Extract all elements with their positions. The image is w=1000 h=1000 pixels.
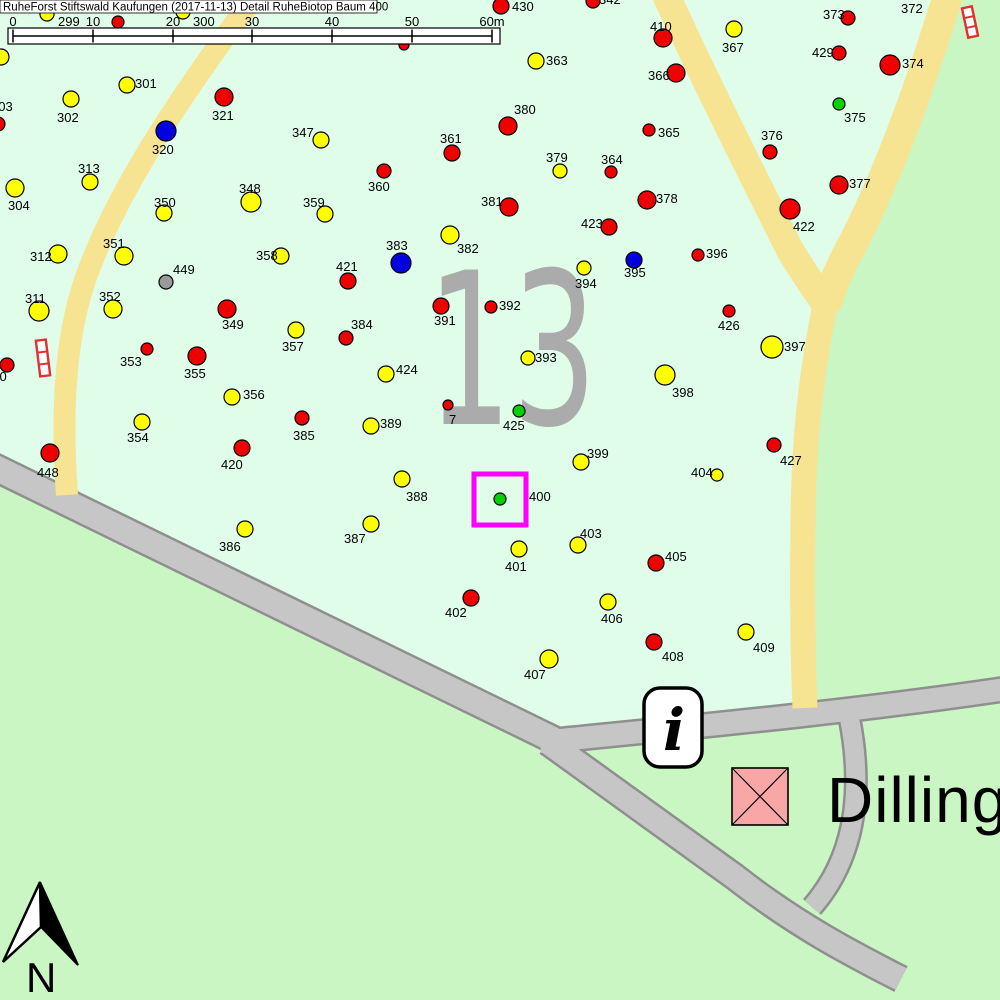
tree-label-388: 388 — [406, 489, 428, 504]
tree-label-311: 311 — [25, 291, 46, 306]
tree-marker-430[interactable]: 430 — [493, 0, 534, 14]
tree-label-359: 359 — [303, 195, 325, 210]
tree-label-373: 373 — [823, 7, 845, 22]
tree-label-342: 342 — [599, 0, 621, 7]
tree-marker-301[interactable]: 301 — [119, 76, 157, 93]
tree-label-427: 427 — [780, 453, 802, 468]
tree-label-312: 312 — [30, 249, 52, 264]
tree-label-380: 380 — [514, 102, 536, 117]
tree-label-400: 400 — [529, 489, 551, 504]
tree-label-364: 364 — [601, 152, 623, 167]
tree-label-381: 381 — [481, 194, 503, 209]
tree-label-398: 398 — [672, 385, 694, 400]
tree-marker-342[interactable]: 342 — [586, 0, 621, 8]
scale-tick-0: 0 — [9, 14, 16, 29]
info-icon[interactable]: i — [644, 688, 702, 767]
tree-label-301: 301 — [135, 76, 157, 91]
tree-label-349: 349 — [222, 317, 244, 332]
tree-marker-358[interactable]: 358 — [256, 248, 289, 264]
tree-label-423: 423 — [581, 216, 603, 231]
forest-map[interactable]: 13 2993003034303424103673733724293743633… — [0, 0, 1000, 1000]
tree-label-420: 420 — [221, 457, 243, 472]
tree-marker-unlabeled[interactable] — [112, 16, 124, 28]
title-bar: RuheForst Stiftswald Kaufungen (2017-11-… — [0, 0, 388, 14]
tree-label-403: 403 — [580, 526, 602, 541]
tree-label-399: 399 — [587, 446, 609, 461]
tree-label-363: 363 — [546, 53, 568, 68]
tree-label-304: 304 — [8, 198, 30, 213]
tree-label-7: 7 — [449, 412, 456, 427]
tree-label-421: 421 — [336, 259, 358, 274]
compartment-number: 13 — [427, 227, 597, 474]
scale-tick-10: 10 — [86, 14, 100, 29]
tree-label-410: 410 — [650, 19, 672, 34]
tree-label-372: 372 — [901, 1, 923, 16]
tree-label-358: 358 — [256, 248, 278, 263]
tree-label-347: 347 — [292, 125, 314, 140]
tree-label-425: 425 — [503, 418, 525, 433]
tree-label-367: 367 — [722, 40, 744, 55]
tree-marker-429[interactable]: 429 — [812, 45, 846, 60]
tree-label-348: 348 — [239, 181, 261, 196]
tree-label-299: 299 — [58, 14, 80, 29]
tree-label-320: 320 — [152, 142, 174, 157]
tree-label-397: 397 — [784, 339, 806, 354]
tree-label-386: 386 — [219, 539, 241, 554]
tree-label-404: 404 — [691, 465, 713, 480]
scale-tick-50: 50 — [405, 14, 419, 29]
tree-label-352: 352 — [99, 289, 121, 304]
north-label: N — [26, 954, 56, 1000]
scale-tick-40: 40 — [325, 14, 339, 29]
tree-label-385: 385 — [293, 428, 315, 443]
scale-tick-60m: 60m — [479, 14, 504, 29]
tree-label-376: 376 — [761, 128, 783, 143]
tree-label-310: 310 — [0, 369, 7, 384]
tree-label-377: 377 — [849, 176, 871, 191]
tree-label-430: 430 — [512, 0, 534, 14]
tree-label-382: 382 — [457, 241, 479, 256]
tree-label-396: 396 — [706, 246, 728, 261]
map-viewport: 13 2993003034303424103673733724293743633… — [0, 0, 1000, 1000]
tree-marker-363[interactable]: 363 — [528, 53, 568, 69]
tree-label-353: 353 — [120, 354, 142, 369]
tree-label-374: 374 — [902, 56, 924, 71]
tree-label-357: 357 — [282, 339, 304, 354]
scale-tick-30: 30 — [245, 14, 259, 29]
tree-label-360: 360 — [368, 179, 390, 194]
tree-label-392: 392 — [499, 298, 521, 313]
tree-label-365: 365 — [658, 125, 680, 140]
tree-label-393: 393 — [535, 350, 557, 365]
tree-label-407: 407 — [524, 667, 546, 682]
tree-marker-348[interactable]: 348 — [239, 181, 261, 212]
tree-label-424: 424 — [396, 362, 418, 377]
tree-label-366: 366 — [648, 68, 670, 83]
tree-label-354: 354 — [127, 430, 149, 445]
tree-label-351: 351 — [103, 236, 125, 251]
tree-label-378: 378 — [656, 191, 678, 206]
tree-label-429: 429 — [812, 45, 834, 60]
site-marker-crossed-square[interactable] — [732, 768, 788, 825]
tree-label-383: 383 — [386, 238, 408, 253]
tree-label-391: 391 — [434, 313, 456, 328]
tree-label-406: 406 — [601, 611, 623, 626]
tree-label-350: 350 — [154, 195, 176, 210]
tree-label-379: 379 — [546, 150, 568, 165]
tree-label-408: 408 — [662, 649, 684, 664]
tree-label-355: 355 — [184, 366, 206, 381]
scale-tick-20: 20 — [166, 14, 180, 29]
tree-label-405: 405 — [665, 549, 687, 564]
place-name-label: Dillingh — [827, 764, 1000, 836]
tree-label-384: 384 — [351, 317, 373, 332]
tree-label-302: 302 — [57, 110, 79, 125]
tree-label-402: 402 — [445, 605, 467, 620]
tree-label-303: 303 — [0, 99, 13, 114]
tree-label-313: 313 — [78, 161, 100, 176]
tree-label-401: 401 — [505, 559, 527, 574]
tree-label-422: 422 — [793, 219, 815, 234]
tree-label-448: 448 — [37, 465, 59, 480]
tree-label-356: 356 — [243, 387, 265, 402]
tree-label-375: 375 — [844, 110, 866, 125]
info-icon-glyph: i — [663, 696, 685, 764]
tree-label-300: 300 — [193, 14, 215, 29]
tree-label-321: 321 — [212, 108, 234, 123]
tree-label-394: 394 — [575, 276, 597, 291]
tree-marker-393[interactable]: 393 — [521, 350, 557, 365]
tree-label-449: 449 — [173, 262, 195, 277]
tree-label-389: 389 — [380, 416, 402, 431]
tree-label-409: 409 — [753, 640, 775, 655]
tree-label-387: 387 — [344, 531, 366, 546]
map-title: RuheForst Stiftswald Kaufungen (2017-11-… — [3, 2, 388, 14]
tree-label-426: 426 — [718, 318, 740, 333]
tree-label-361: 361 — [440, 131, 462, 146]
tree-label-395: 395 — [624, 265, 646, 280]
